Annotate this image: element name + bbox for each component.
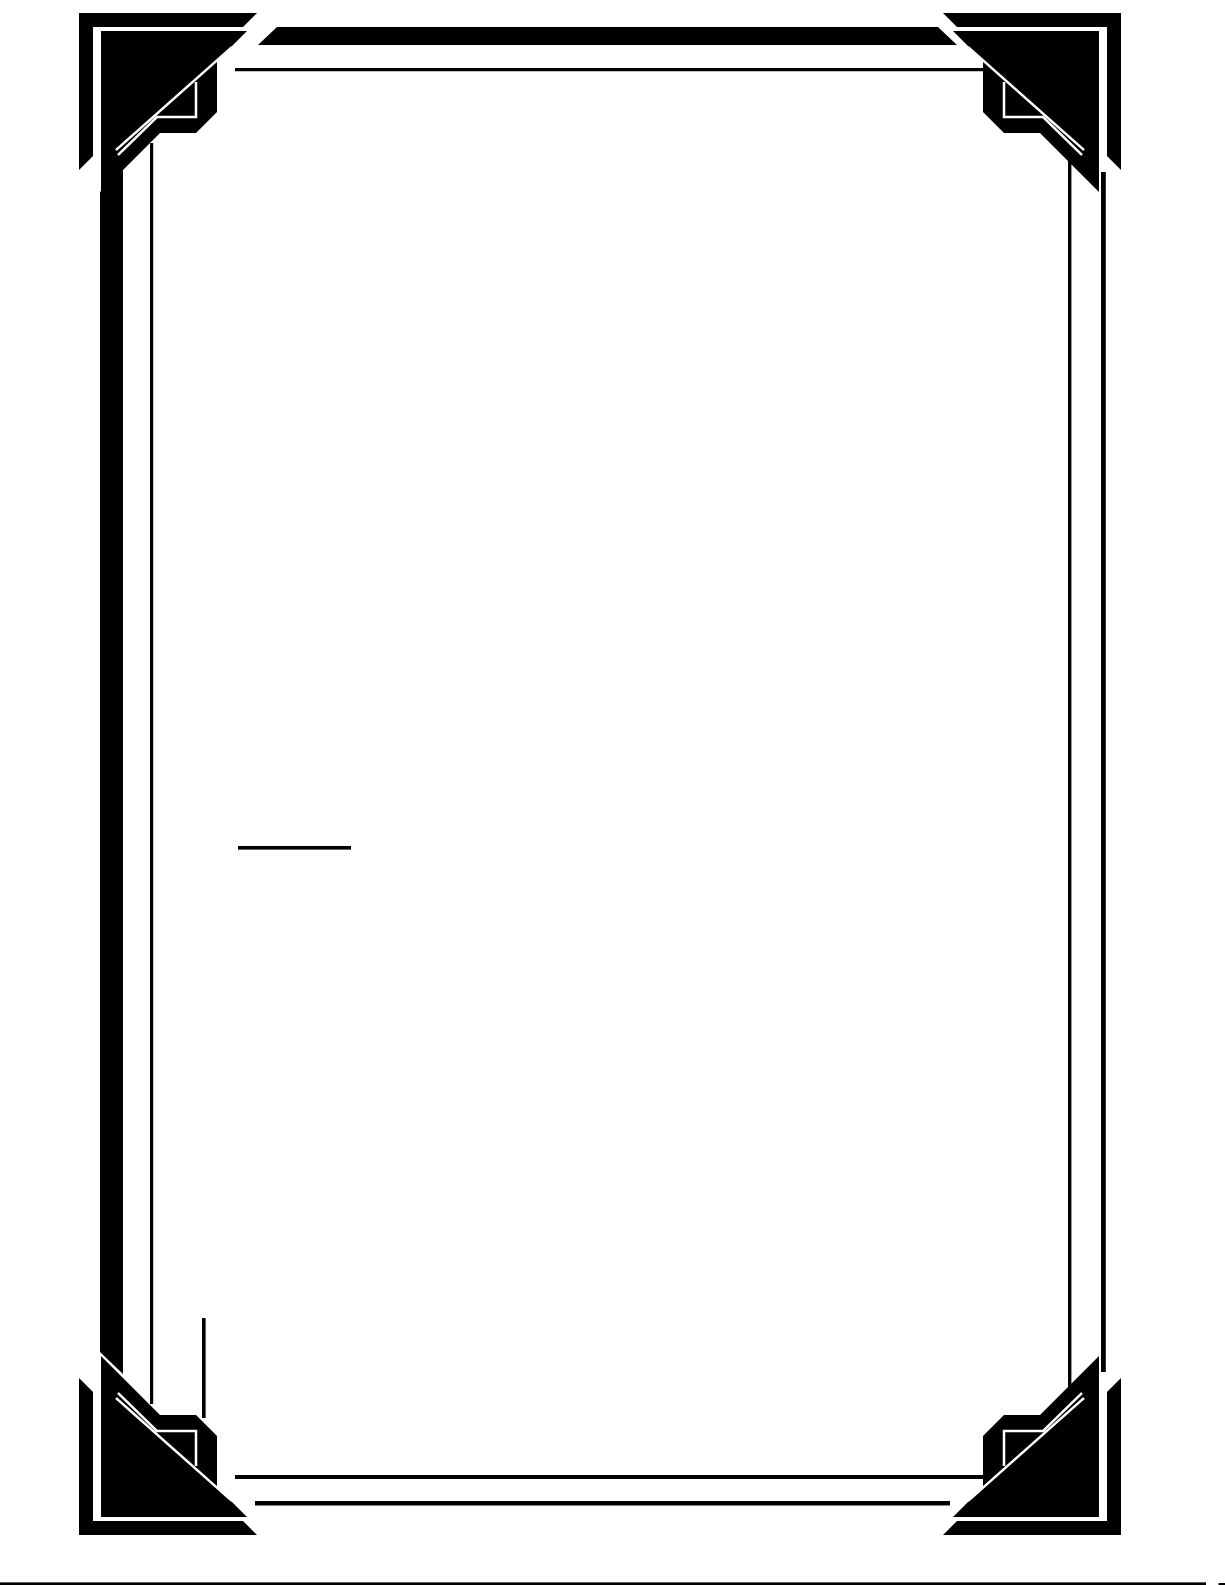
document-page — [0, 0, 1225, 1585]
blank-content-area — [154, 72, 1068, 1475]
left-inner-rule — [150, 143, 153, 1404]
right-inner-rule — [1068, 150, 1071, 1396]
right-outer-rule — [1101, 172, 1106, 1372]
top-inner-rule — [235, 68, 988, 71]
bottom-outer-rule — [255, 1501, 950, 1506]
top-outer-bar — [258, 27, 957, 45]
left-outer-bar — [100, 170, 123, 1374]
bottom-inner-rule — [235, 1475, 988, 1479]
